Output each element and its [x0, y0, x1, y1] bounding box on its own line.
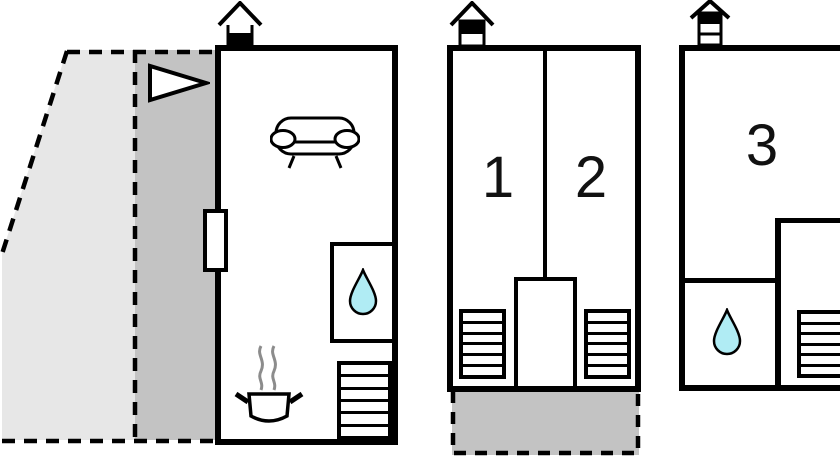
- stair-step: [801, 343, 840, 354]
- entrance-hall: [514, 277, 577, 386]
- water-drop-icon: [347, 268, 379, 316]
- stairs-icon: [797, 310, 840, 378]
- entrance-arrow-icon: [146, 62, 210, 104]
- stair-step: [463, 353, 502, 364]
- stair-step: [341, 374, 388, 386]
- stair-step: [463, 342, 502, 353]
- stairs-icon: [584, 309, 631, 379]
- living-unit: [215, 45, 398, 445]
- stair-step: [588, 321, 627, 332]
- room-2-label: 2: [547, 148, 635, 208]
- stair-step: [588, 313, 627, 321]
- stair-step: [588, 364, 627, 375]
- sofa-icon: [270, 116, 360, 172]
- stair-step: [801, 364, 840, 375]
- chimney-icon: [449, 1, 495, 47]
- stair-step: [801, 322, 840, 333]
- stairs-icon: [459, 309, 506, 379]
- bedroom-unit: 1 2: [447, 45, 641, 392]
- stairs-icon: [337, 361, 392, 440]
- room-3-label: 3: [705, 116, 819, 176]
- stair-step: [588, 353, 627, 364]
- stair-step: [588, 332, 627, 343]
- stair-step: [801, 332, 840, 343]
- stair-step: [801, 353, 840, 364]
- door-icon: [203, 209, 228, 272]
- stair-step: [463, 364, 502, 375]
- chimney-icon: [217, 1, 263, 47]
- stair-step: [341, 399, 388, 411]
- stair-step: [463, 332, 502, 343]
- stair-step: [588, 342, 627, 353]
- floor-plan: 1 2 3: [0, 0, 840, 460]
- terrace-area: [452, 391, 639, 455]
- stair-step: [341, 365, 388, 374]
- stair-step: [463, 313, 502, 321]
- interior-wall: [775, 218, 781, 385]
- stair-step: [341, 387, 388, 399]
- stair-step: [341, 411, 388, 423]
- stair-step: [341, 424, 388, 436]
- bathroom-wall: [685, 278, 778, 283]
- stair-step: [801, 314, 840, 322]
- stair-step: [463, 321, 502, 332]
- bedroom-unit-3: 3: [679, 45, 840, 391]
- interior-wall: [775, 218, 840, 223]
- water-drop-icon: [711, 308, 743, 356]
- room-1-label: 1: [453, 148, 543, 208]
- chimney-icon: [687, 0, 733, 46]
- cooking-pot-icon: [233, 342, 305, 428]
